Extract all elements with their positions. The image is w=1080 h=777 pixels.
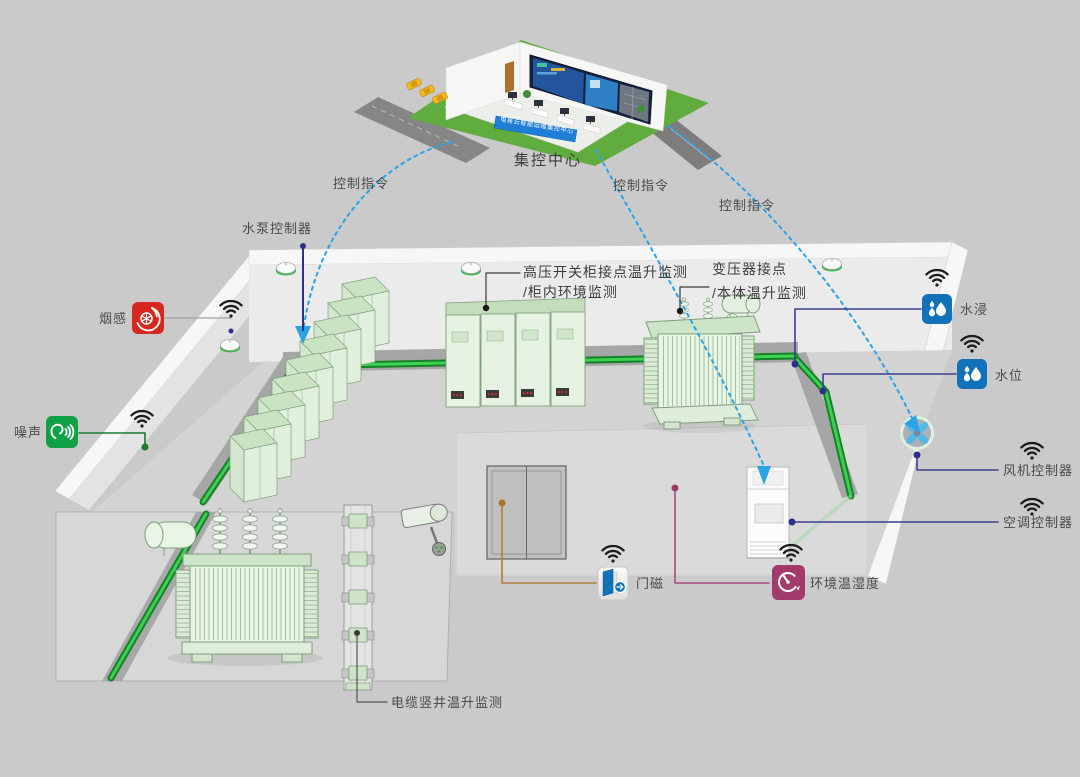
- cabinet-unit: [230, 429, 277, 502]
- transformer-label-line2: /本体温升监测: [712, 285, 807, 301]
- room-door: [505, 61, 514, 93]
- smoke-detector-dome: [823, 259, 842, 271]
- command-label-2: 控制指令: [613, 178, 669, 193]
- command-label-1: 控制指令: [333, 176, 389, 191]
- transformer-label-line1: 变压器接点: [712, 261, 787, 277]
- camera-lens: [433, 543, 446, 556]
- smoke-sensor-icon: [132, 302, 164, 334]
- smoke-detector-dome: [221, 340, 240, 352]
- water-immersion-icon: [922, 294, 952, 324]
- door-magnet-label: 门磁: [636, 576, 664, 591]
- door-magnet-icon: [598, 567, 628, 600]
- smoke-label: 烟感: [99, 311, 127, 326]
- ac-cabinet: [747, 467, 789, 558]
- plant: [523, 90, 531, 98]
- temp-humidity-icon: [772, 565, 805, 600]
- substation-monitoring-diagram: 电易云智能运维集控中心 集控中心: [0, 0, 1080, 777]
- water-level-label: 水位: [995, 368, 1023, 383]
- plant: [637, 105, 645, 113]
- cable-shaft-label: 电缆竖井温升监测: [391, 695, 503, 710]
- smoke-detector-dome: [277, 263, 296, 275]
- control-center-label: 集控中心: [514, 152, 582, 169]
- diagram-canvas: 电易云智能运维集控中心 集控中心: [0, 0, 1080, 777]
- temp-humidity-label: 环境温湿度: [810, 576, 880, 591]
- smoke-detector-dome: [462, 263, 481, 275]
- noise-label: 噪声: [14, 425, 42, 440]
- cable-vault-cutaway: [56, 502, 452, 690]
- room-double-door: [487, 466, 566, 559]
- hv-switchgear-label-line1: 高压开关柜接点温升监测: [523, 264, 688, 280]
- fan-controller-label: 风机控制器: [1003, 463, 1073, 478]
- pump-controller-label: 水泵控制器: [242, 221, 312, 236]
- command-label-3: 控制指令: [719, 198, 775, 213]
- water-immersion-label: 水浸: [960, 302, 988, 317]
- cable-shaft: [342, 505, 374, 690]
- ac-controller-label: 空调控制器: [1003, 515, 1073, 530]
- water-level-icon: [957, 359, 987, 389]
- noise-sensor-icon: [46, 416, 78, 448]
- hv-switchgear-label-line2: /柜内环境监测: [523, 284, 618, 300]
